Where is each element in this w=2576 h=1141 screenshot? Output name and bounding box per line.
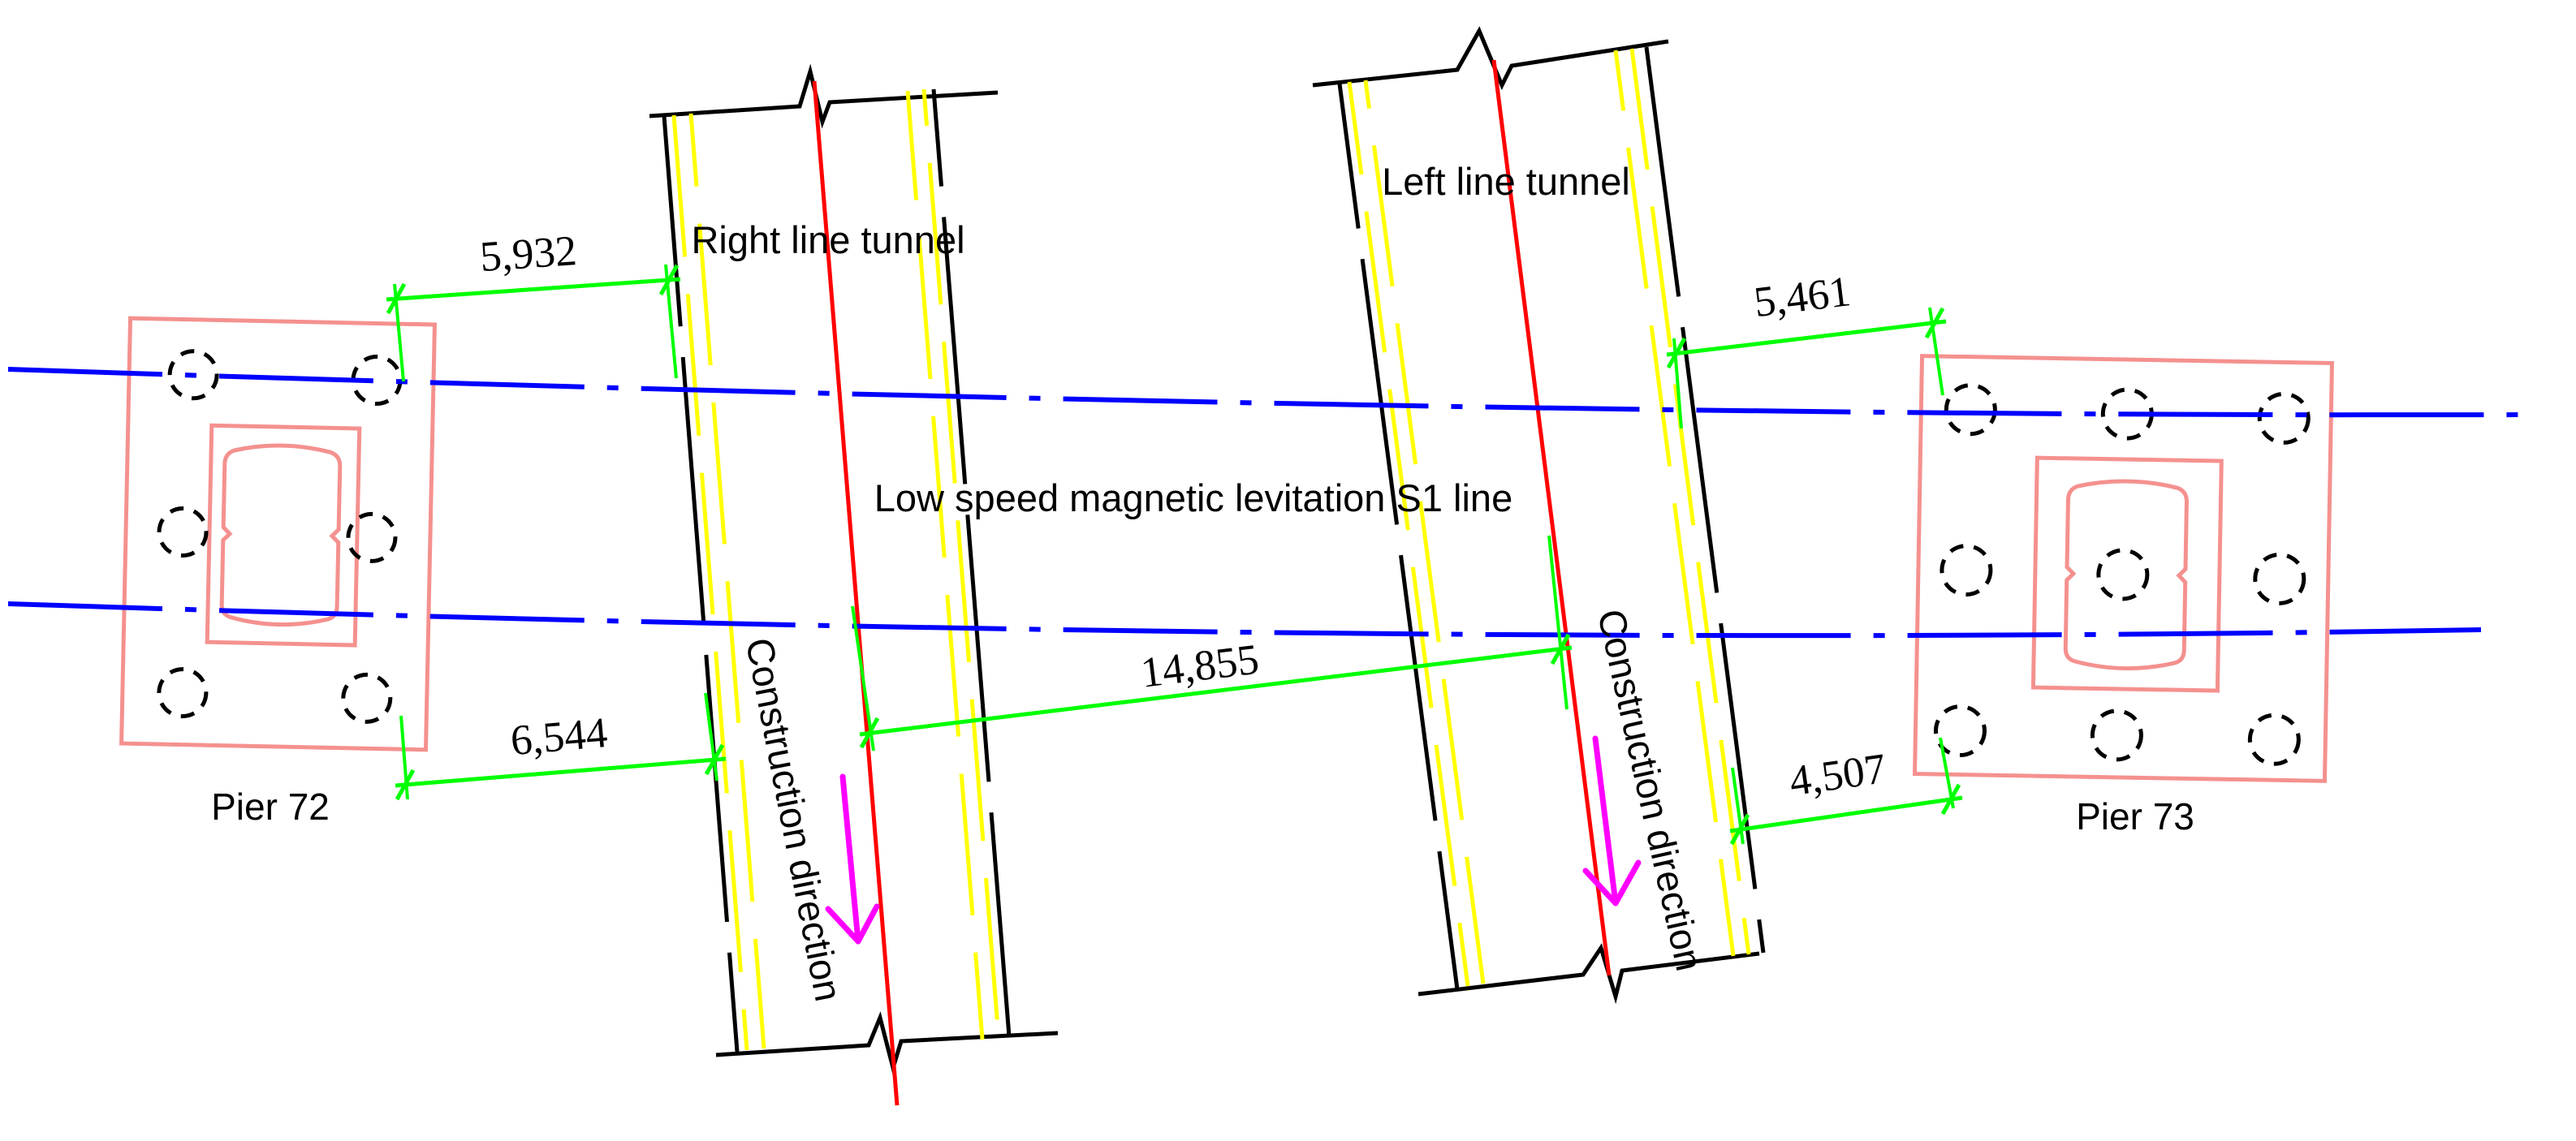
left-tunnel-left-wall	[1340, 84, 1457, 989]
dimension-value: 5,461	[1751, 268, 1853, 326]
dimension-value: 4,507	[1787, 745, 1889, 805]
pier-72-pile-circle	[158, 508, 206, 556]
pier-72-pile-circle	[158, 669, 206, 717]
pier-73-column-outline	[2065, 480, 2187, 670]
left-tunnel-guide-rail	[1366, 80, 1483, 984]
right-tunnel-top-edge-with-break	[649, 71, 998, 122]
left-tunnel-guide-rail	[1349, 82, 1468, 986]
arrow-shaft	[843, 777, 858, 941]
pier-73-cap-outline	[2033, 458, 2221, 691]
dimension-line	[1667, 321, 1946, 355]
dimension-value: 6,544	[509, 709, 610, 764]
pier-72	[122, 318, 435, 750]
s1-line-label: Low speed magnetic levitation S1 line	[874, 476, 1512, 519]
pier-73-pile-circle	[2092, 710, 2142, 760]
construction-direction-label-left: Construction direction	[1590, 605, 1711, 975]
dimension-line	[395, 759, 726, 786]
dimension-line	[1730, 798, 1962, 831]
s1-axis-line-lower	[8, 604, 2481, 635]
pier-72-pile-circle	[343, 674, 390, 722]
pier-73-pile-circle	[1946, 385, 1996, 434]
site-plan-drawing: Pier 72 Pier 73	[0, 0, 2576, 1141]
pier-72-piles	[155, 351, 400, 722]
pier-73	[1915, 356, 2332, 781]
pier-73-label: Pier 73	[2076, 795, 2194, 837]
pier-73-pile-circle	[2255, 554, 2304, 604]
dimension-5932: 5,932	[386, 227, 680, 381]
right-tunnel-label: Right line tunnel	[691, 218, 964, 261]
pier-73-pile-circle	[2250, 715, 2299, 764]
pier-72-label: Pier 72	[211, 786, 330, 828]
dimension-value: 5,932	[478, 227, 578, 281]
pier-73-pile-circle	[2098, 549, 2147, 599]
dimension-4507: 4,507	[1730, 738, 1962, 844]
pier-72-column-outline	[222, 445, 341, 626]
pier-73-pile-circle	[1941, 545, 1991, 595]
dimension-6544: 6,544	[395, 693, 726, 799]
drawing-sheet: Pier 72 Pier 73	[0, 0, 2576, 1141]
pier-72-pile-circle	[347, 514, 395, 562]
pier-73-piles	[1935, 385, 2309, 764]
dimension-line	[386, 279, 680, 299]
dimension-5461: 5,461	[1667, 268, 1946, 428]
pier-73-pile-circle	[2259, 394, 2309, 443]
left-tunnel-label: Left line tunnel	[1382, 160, 1630, 203]
